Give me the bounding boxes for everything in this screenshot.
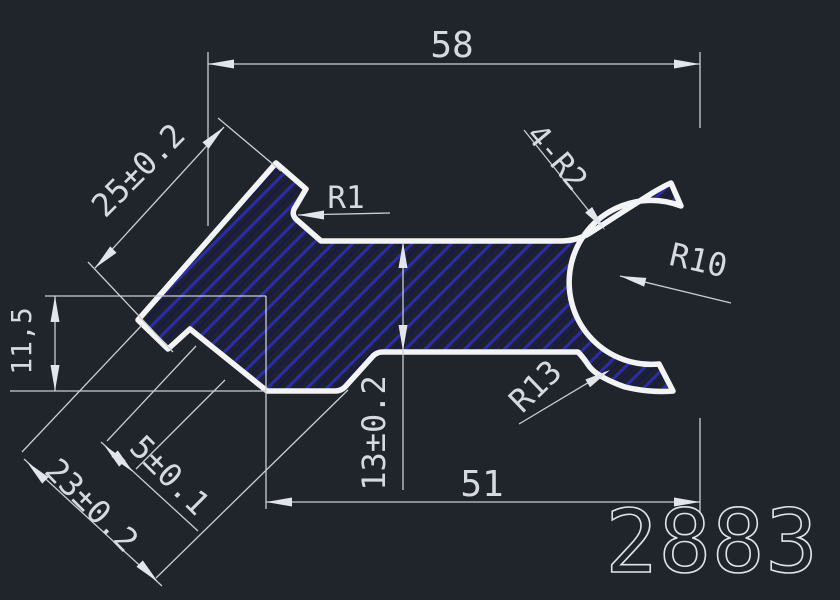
cad-drawing-canvas: 2883 58 51 13±0.2 11,5	[0, 0, 840, 600]
dim-58-label: 58	[430, 25, 473, 66]
dim-51-label: 51	[460, 464, 503, 505]
cad-drawing: 2883 58 51 13±0.2 11,5	[0, 0, 840, 600]
dim-11-5-label: 11,5	[5, 307, 38, 374]
part-number-label: 2883	[605, 491, 819, 593]
leader-r1-label: R1	[327, 180, 364, 216]
dim-13-label: 13±0.2	[355, 375, 393, 491]
